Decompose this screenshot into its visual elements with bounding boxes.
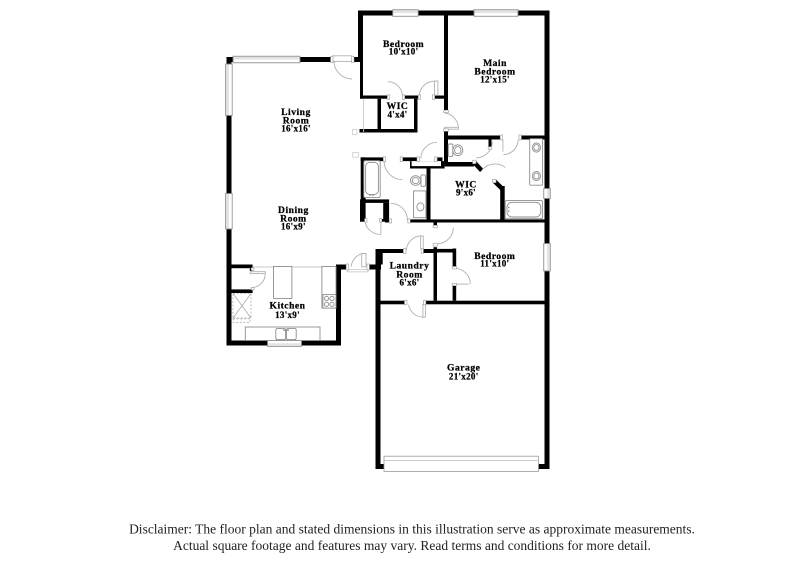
svg-text:Actual square footage and feat: Actual square footage and features may v…: [173, 538, 651, 553]
svg-text:Disclaimer: The floor plan and: Disclaimer: The floor plan and stated di…: [129, 522, 695, 537]
svg-text:16'x16': 16'x16': [281, 124, 311, 134]
svg-text:10'x10': 10'x10': [389, 47, 419, 57]
svg-text:16'x9': 16'x9': [281, 222, 306, 232]
svg-text:21'x20': 21'x20': [449, 371, 479, 381]
svg-text:11'x10': 11'x10': [480, 259, 509, 269]
svg-text:9'x6': 9'x6': [456, 188, 476, 198]
svg-text:13'x9': 13'x9': [275, 310, 300, 320]
svg-text:6'x6': 6'x6': [399, 277, 419, 287]
svg-text:12'x15': 12'x15': [480, 75, 510, 85]
svg-text:4'x4': 4'x4': [387, 109, 407, 119]
